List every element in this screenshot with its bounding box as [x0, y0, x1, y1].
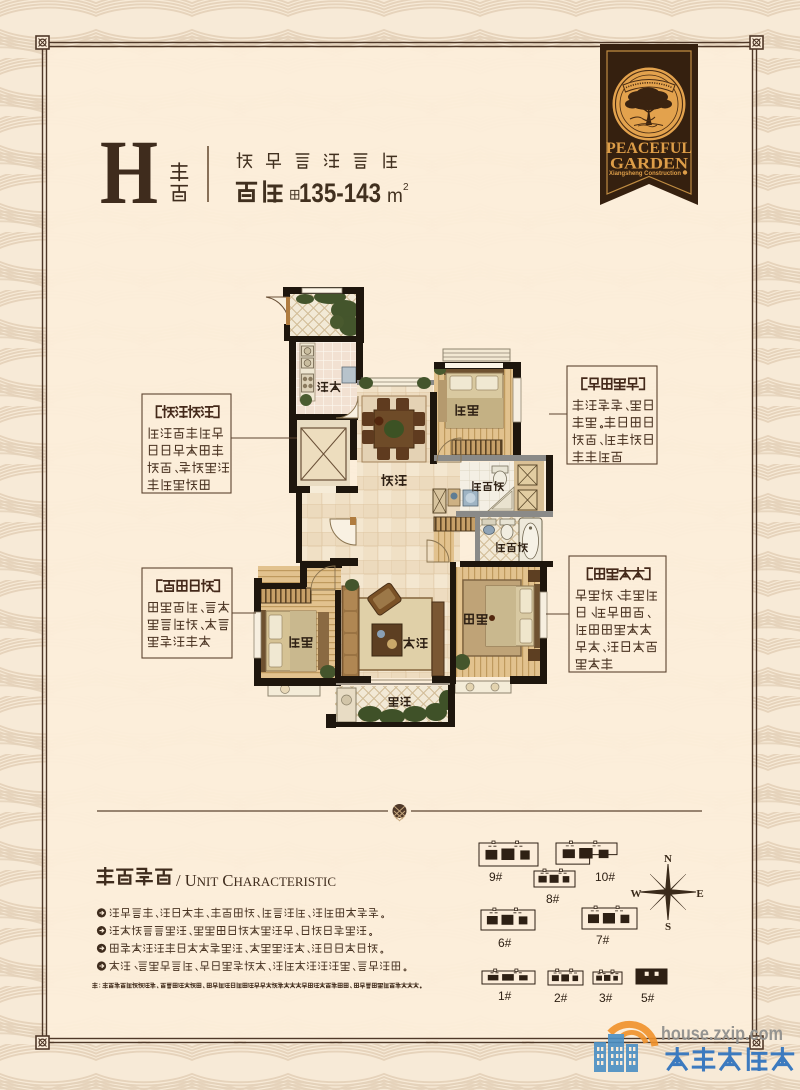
svg-text:2: 2 [403, 182, 409, 193]
svg-text:/ UNIT CHARACTERISTIC: / UNIT CHARACTERISTIC [176, 871, 336, 890]
svg-text:1#: 1# [498, 989, 512, 1003]
svg-text:S: S [665, 921, 671, 933]
svg-text:7#: 7# [596, 933, 610, 947]
svg-text:PEACEFUL: PEACEFUL [606, 140, 692, 157]
svg-text:N: N [664, 853, 672, 865]
svg-text:5#: 5# [641, 991, 655, 1005]
svg-text:H: H [100, 121, 158, 223]
svg-text:W: W [631, 888, 642, 900]
svg-text:9#: 9# [489, 870, 503, 884]
svg-text:2#: 2# [554, 991, 568, 1005]
svg-text:8#: 8# [546, 892, 560, 906]
svg-text:135-143: 135-143 [299, 178, 381, 208]
svg-text:6#: 6# [498, 936, 512, 950]
svg-text:Xiangsheng Construction: Xiangsheng Construction [609, 170, 681, 177]
svg-text:m: m [387, 186, 403, 207]
svg-text:house.zxip.com: house.zxip.com [661, 1024, 783, 1045]
svg-text:E: E [696, 888, 703, 900]
svg-text:10#: 10# [595, 870, 615, 884]
svg-text:3#: 3# [599, 991, 613, 1005]
